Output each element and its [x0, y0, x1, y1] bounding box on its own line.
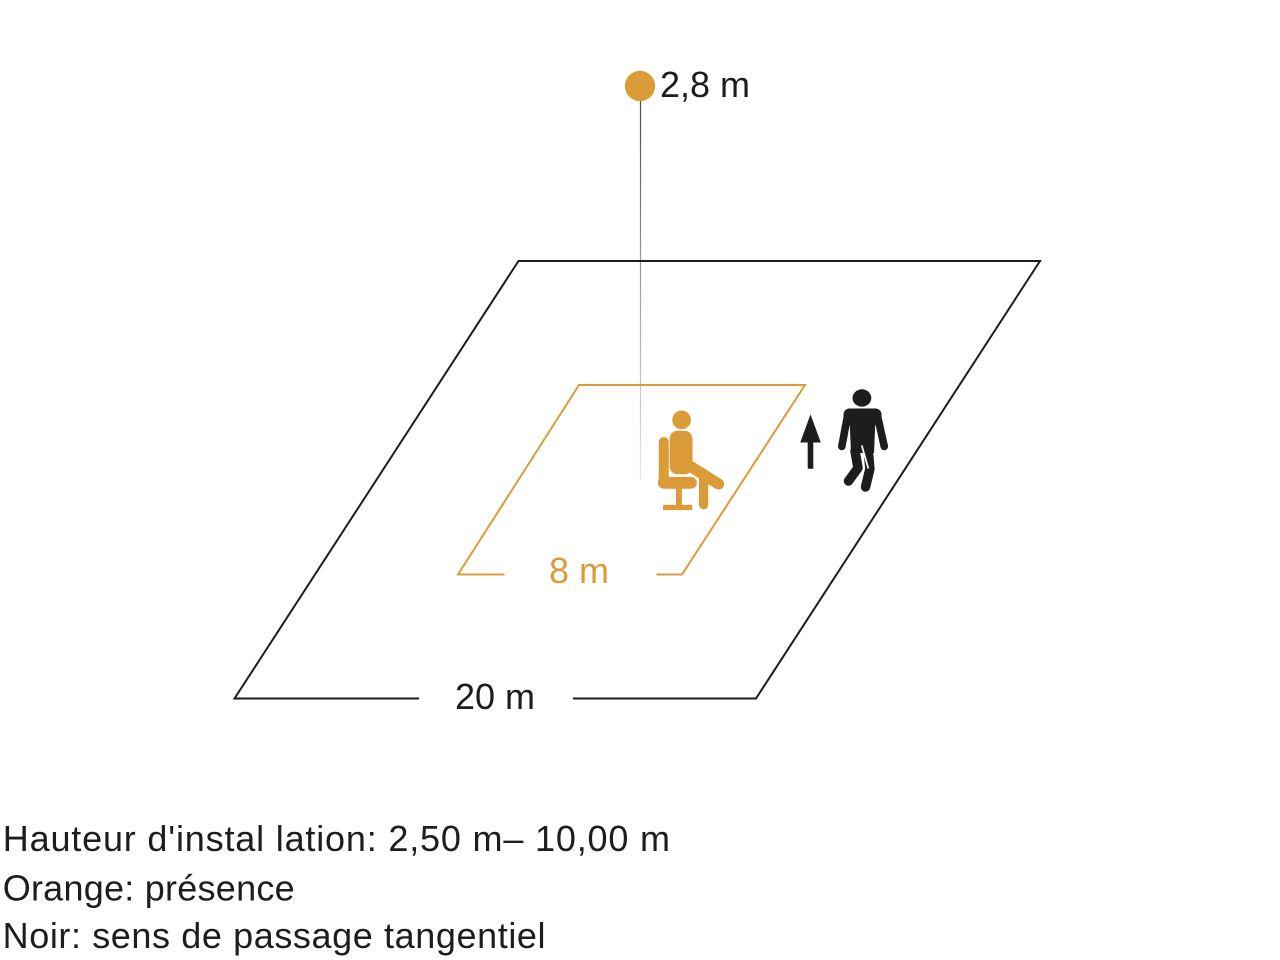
svg-text:Orange: présence: Orange: présence	[3, 868, 295, 909]
svg-text:20 m: 20 m	[455, 676, 535, 717]
svg-text:2,8 m: 2,8 m	[660, 64, 750, 105]
svg-text:Noir: sens de passage tangenti: Noir: sens de passage tangentiel	[3, 915, 547, 956]
svg-text:Hauteur d'instal lation: 2,50: Hauteur d'instal lation: 2,50 m– 10,00 m	[3, 818, 671, 859]
svg-text:8 m: 8 m	[549, 550, 609, 591]
